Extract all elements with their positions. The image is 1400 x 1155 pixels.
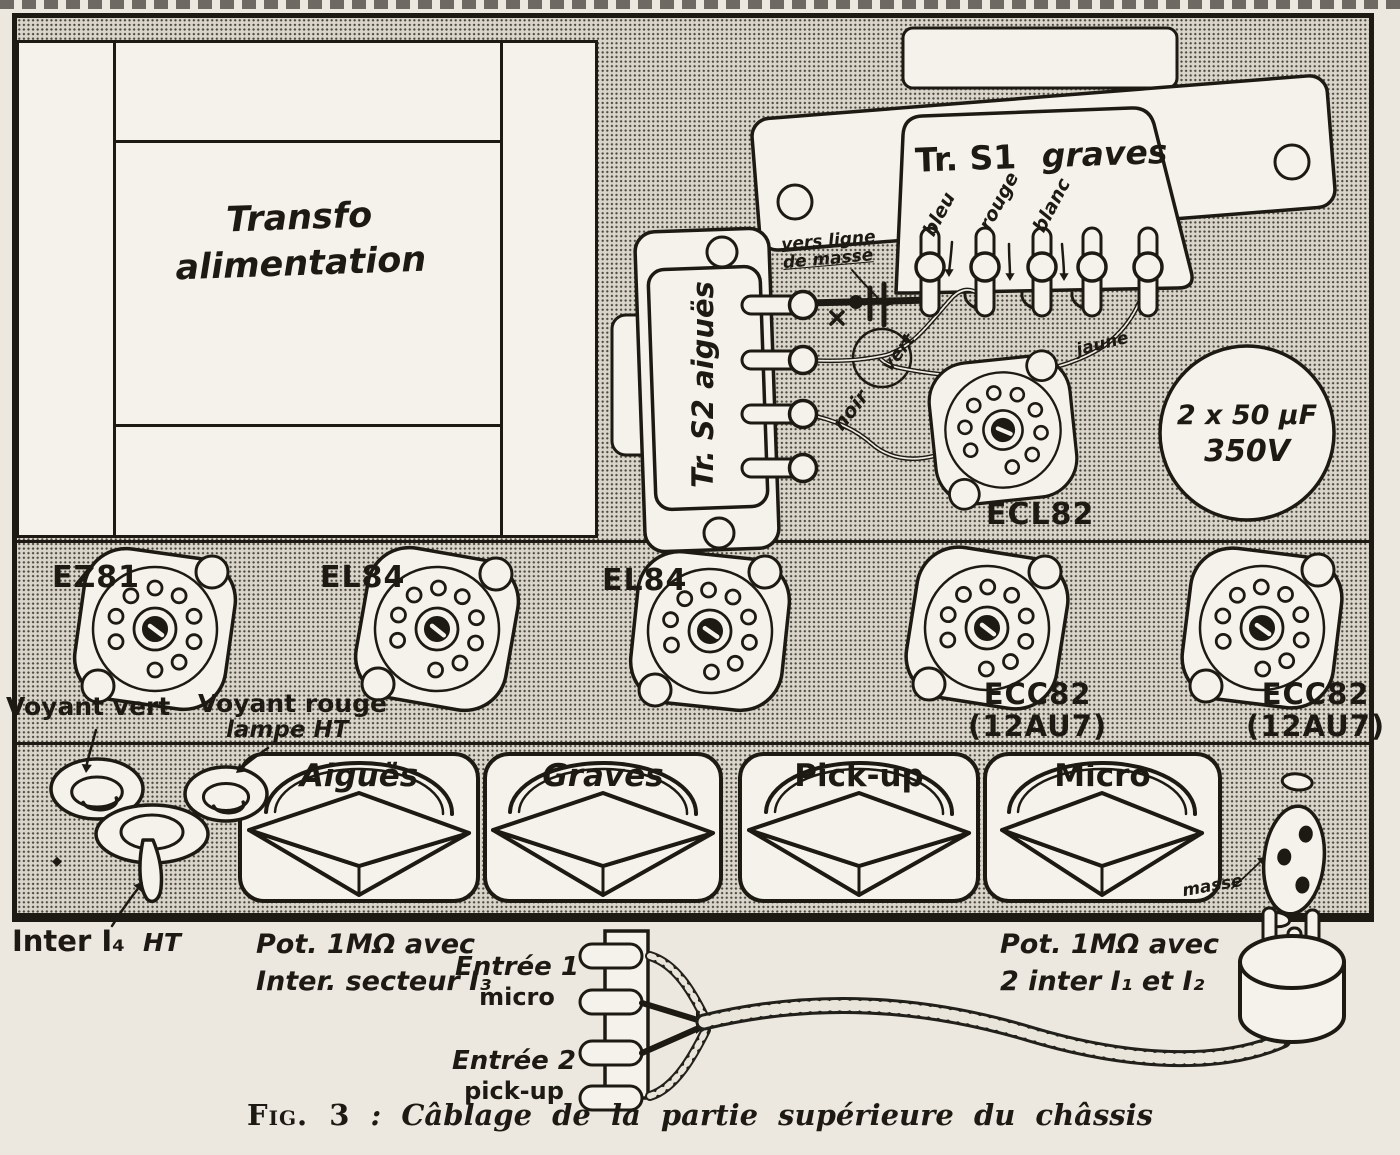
tube-label-ecl82: ECL82	[986, 497, 1094, 532]
input2-label: Entrée 2 pick-up	[446, 1046, 582, 1106]
tube-label-ecc82-1-equ112au7: (12AU7)	[968, 710, 1107, 742]
tube-label-el84-2: EL84	[602, 563, 687, 598]
knob-label-aigues: Aiguës	[238, 758, 480, 794]
power-transformer-label: Transfo alimentation	[148, 190, 451, 292]
figure-caption: Fig. 3 : Câblage de la partie supérieure…	[0, 1098, 1400, 1132]
tube-label-ez81: EZ81	[52, 560, 140, 595]
filter-capacitor-label: 2 x 50 µF 350V	[1172, 398, 1322, 470]
tube-label-el84-1: EL84	[320, 560, 405, 595]
wiring-diagram-figure: Transfo alimentation Tr. S1 graves bleu …	[0, 0, 1400, 1155]
tube-label-ecc82-2-equ12au7: (12AU7)	[1246, 710, 1385, 742]
mains-plug	[1240, 908, 1344, 1042]
input1-line2: micro	[452, 982, 582, 1012]
input2-line1: Entrée 2	[446, 1046, 582, 1076]
tube-label-ecc82-2-main: ECC82	[1246, 678, 1385, 710]
tube-label-ecc82-1: ECC82 (12AU7)	[968, 678, 1107, 742]
ground-line-note: vers ligne de masse	[781, 228, 878, 272]
tube-label-ecc82-1-main: ECC82	[968, 678, 1107, 710]
tube-label-ecc82-2: ECC82 (12AU7)	[1246, 678, 1385, 742]
ht-switch-label-main: Inter I₄	[12, 924, 125, 958]
input1-label: Entrée 1 micro	[452, 952, 582, 1012]
knob-label-micro: Micro	[983, 758, 1222, 794]
red-lamp-label-line1: Voyant rouge	[198, 690, 387, 717]
tr-s1-channel: graves	[1041, 132, 1168, 175]
knob-label-graves: Graves	[483, 758, 723, 794]
green-lamp-label: Voyant vert	[6, 692, 170, 721]
figure-caption-text: Câblage de la partie supérieure du châss…	[401, 1098, 1153, 1132]
pot-right-line2: 2 inter I₁ et I₂	[1000, 963, 1219, 1000]
ht-switch-label: Inter I₄ HT	[12, 924, 181, 958]
pot-right-line1: Pot. 1MΩ avec	[1000, 926, 1219, 963]
filter-capacitor-value: 2 x 50 µF	[1172, 398, 1322, 434]
red-lamp-label: Voyant rouge lampe HT	[198, 690, 387, 744]
pot-right-label: Pot. 1MΩ avec 2 inter I₁ et I₂	[1000, 926, 1219, 1000]
tr-s2-label: Tr. S2 aiguës	[686, 277, 720, 492]
figure-caption-number: Fig. 3	[247, 1098, 350, 1132]
input1-line1: Entrée 1	[452, 952, 582, 982]
figure-caption-separator: :	[350, 1098, 401, 1132]
ht-toggle-switch	[52, 805, 208, 901]
knob-label-pickup: Pick-up	[738, 758, 980, 794]
filter-capacitor-voltage: 350V	[1172, 434, 1322, 470]
red-lamp-label-line2: lampe HT	[226, 717, 387, 744]
ht-switch-label-suffix: HT	[143, 928, 181, 957]
